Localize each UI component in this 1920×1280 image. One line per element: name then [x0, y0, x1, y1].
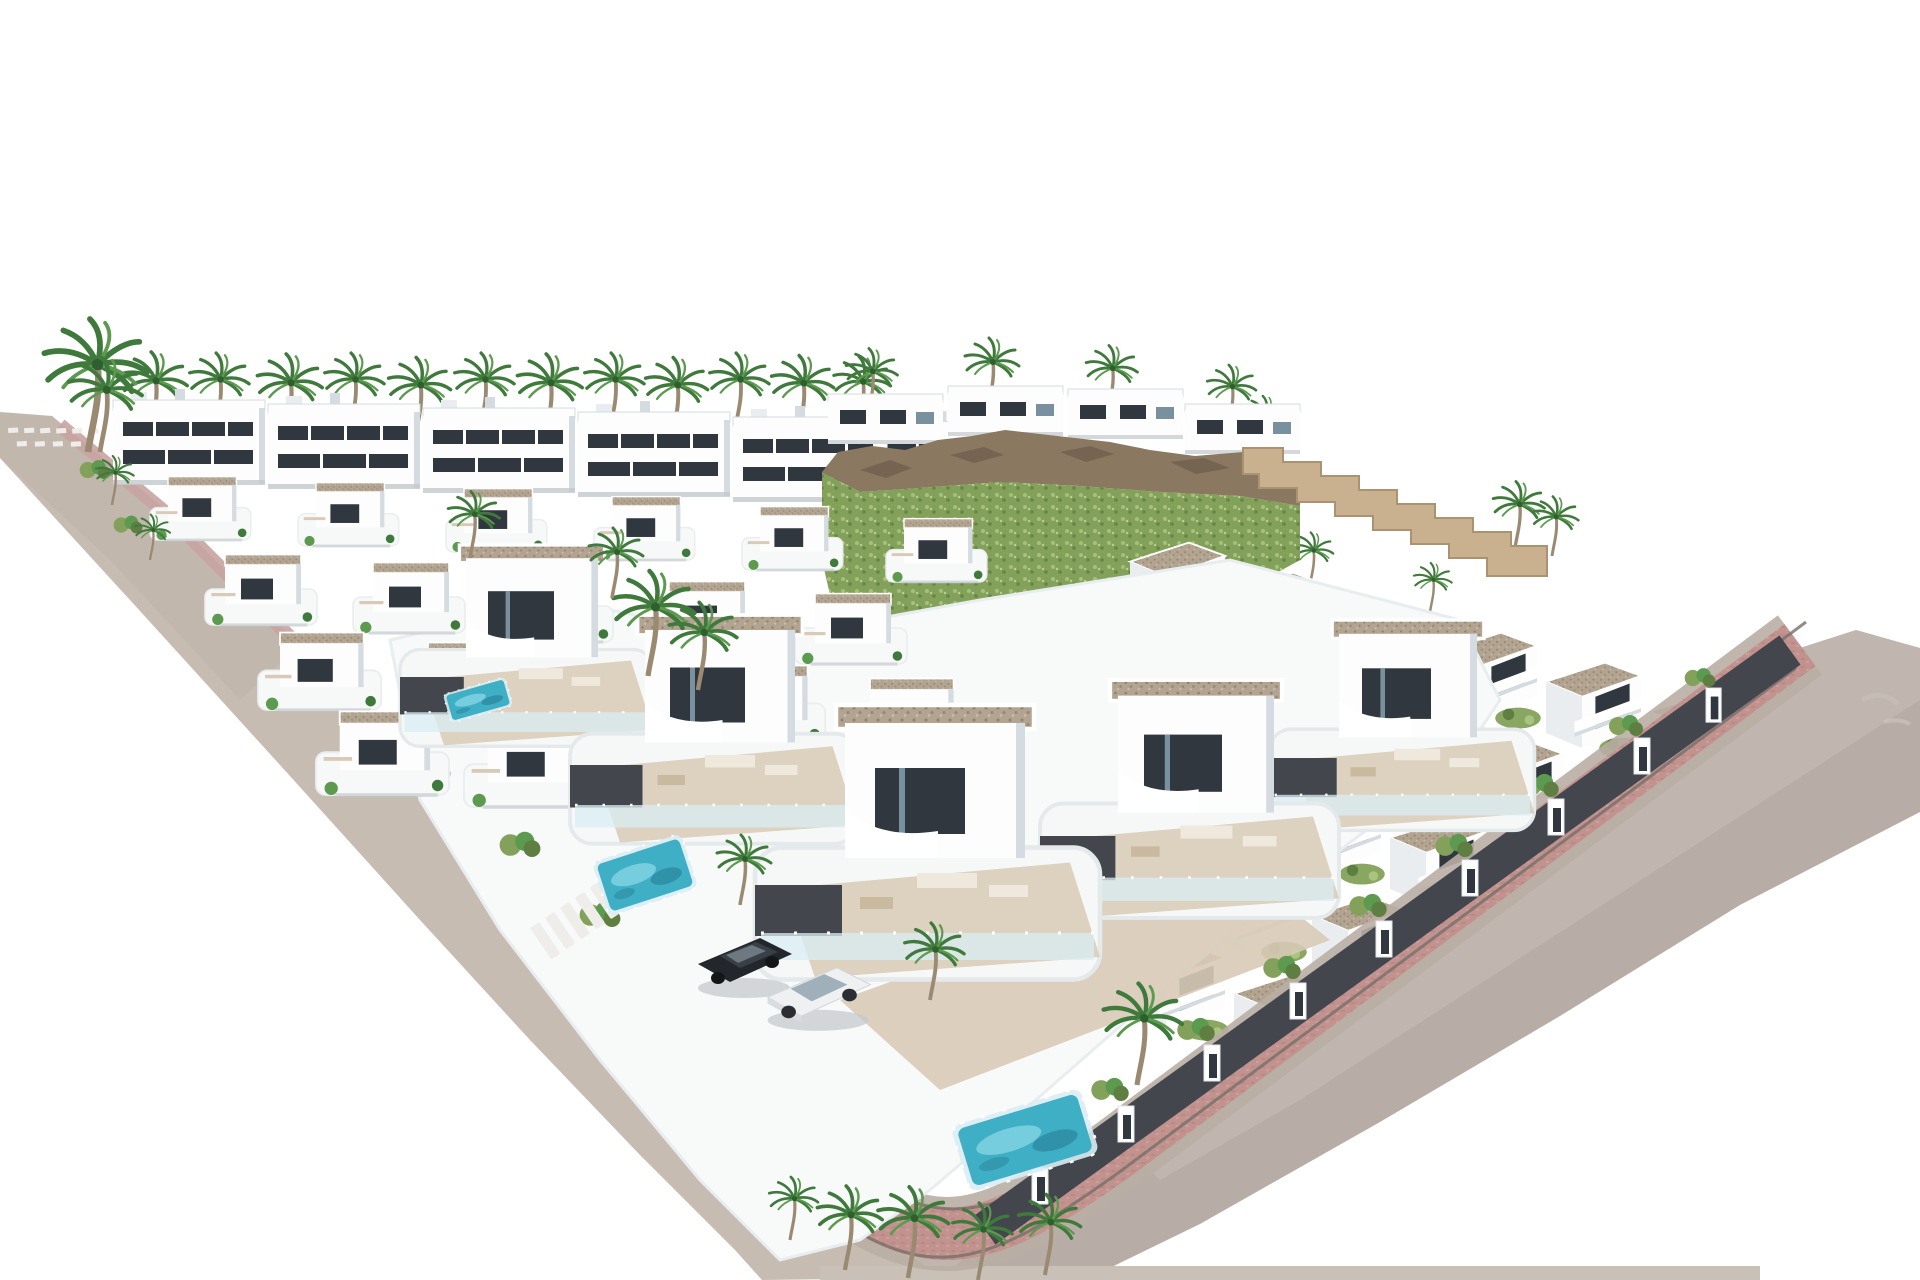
- apartment-block: [423, 397, 575, 493]
- hilltop-house: [1068, 389, 1183, 439]
- apartment-block: [578, 401, 730, 497]
- entrance-pillar: [1118, 1106, 1134, 1142]
- entrance-pillar: [1290, 983, 1306, 1019]
- entrance-pillar: [1706, 688, 1721, 722]
- apartment-block: [268, 393, 420, 489]
- hilltop-house: [1185, 404, 1300, 454]
- entrance-pillar: [1032, 1168, 1048, 1204]
- hilltop-house: [948, 386, 1063, 436]
- entrance-pillar: [1462, 860, 1478, 896]
- hilltop-house: [828, 394, 943, 444]
- entrance-pillar: [1548, 799, 1564, 835]
- entrance-pillar: [1204, 1045, 1220, 1081]
- apartment-block: [113, 389, 265, 485]
- entrance-pillar: [1634, 738, 1650, 774]
- scene-render: 3d-architectural-render: [0, 0, 1920, 1280]
- entrance-pillar: [1376, 921, 1392, 957]
- development-aerial-view: 3d-architectural-render: [0, 0, 1920, 1280]
